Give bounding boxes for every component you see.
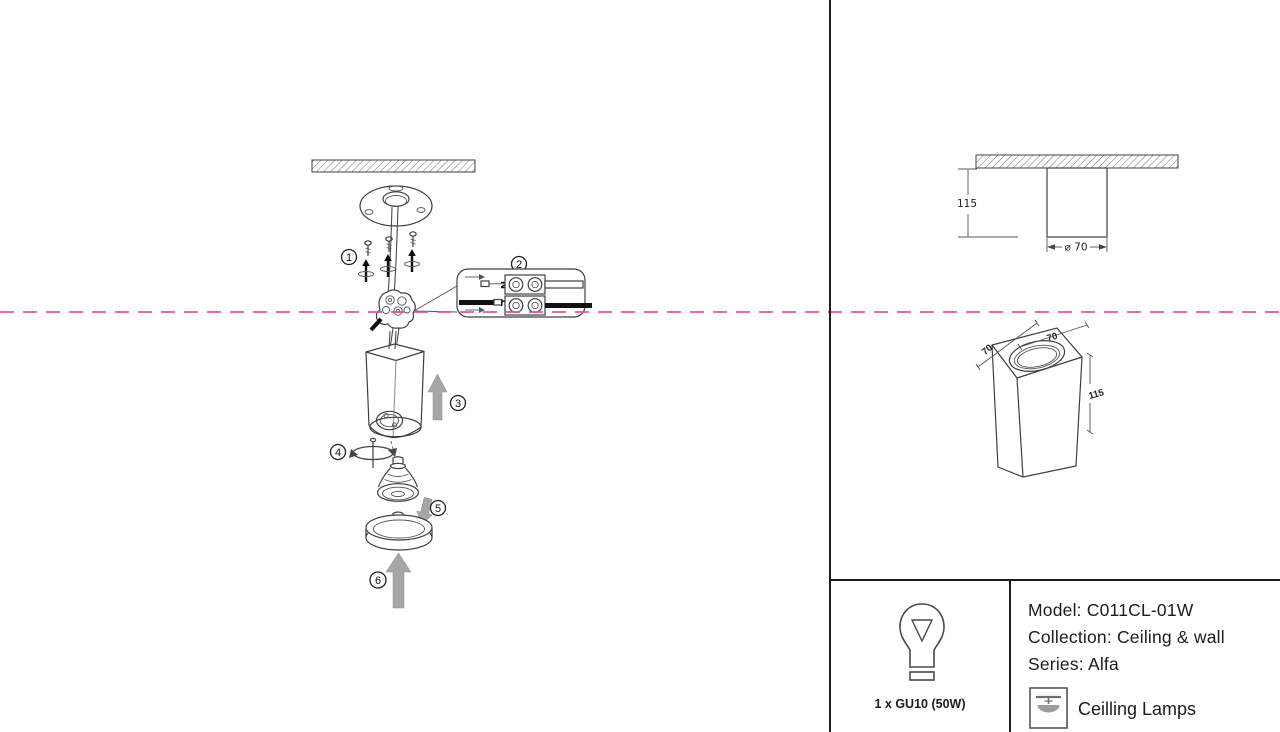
lamp-side-view [1047, 168, 1107, 237]
step-6-attach: 6 [370, 553, 411, 608]
step-5-badge: 5 [431, 501, 446, 516]
step-6-badge: 6 [370, 572, 386, 588]
up-arrow-icon [428, 374, 447, 420]
collection-text: Collection: Ceiling & wall [1028, 627, 1225, 648]
up-arrow-icon [386, 553, 411, 608]
ceiling-lamp-icon [1030, 688, 1067, 728]
assembly-diagram: 1 [312, 160, 592, 608]
category-text: Ceilling Lamps [1078, 699, 1196, 720]
wire-joint [371, 290, 415, 349]
step-4-number: 4 [335, 447, 341, 459]
step-1-badge: 1 [342, 250, 357, 265]
lamp-body [366, 331, 424, 438]
screw-1 [359, 241, 374, 282]
mounting-plate [360, 186, 432, 226]
step-6-number: 6 [375, 575, 381, 587]
screw-3 [405, 232, 420, 272]
step-5-number: 5 [435, 503, 441, 515]
terminal-block-detail: 2 N L [414, 257, 592, 318]
iso-height-label: 115 [1088, 387, 1106, 402]
series-text: Series: Alfa [1028, 654, 1119, 675]
step-3-mount: 3 [428, 374, 466, 420]
side-diameter-label: ⌀ 70 [1064, 242, 1087, 254]
bulb-spec: 1 x GU10 (50W) [830, 697, 1010, 711]
ceiling-hatch-left [312, 160, 475, 172]
instruction-sheet-canvas: 1 [0, 0, 1280, 732]
ceiling-hatch-right [976, 155, 1178, 168]
model-text: Model: C011CL-01W [1028, 600, 1194, 621]
lamp-iso-view [992, 328, 1082, 477]
gu10-bulb [378, 457, 419, 502]
step-1-number: 1 [346, 252, 352, 264]
step-1-screws: 1 [342, 232, 420, 282]
step-4-rotate: 4 [331, 438, 398, 468]
step-4-badge: 4 [331, 445, 346, 460]
side-view-diagram: 115 ⌀ 70 [957, 155, 1178, 254]
step-3-badge: 3 [451, 396, 466, 411]
side-height-label: 115 [957, 198, 977, 210]
step-3-number: 3 [455, 398, 461, 410]
iso-view-diagram: 70 70 115 [976, 320, 1106, 477]
screw-2 [381, 237, 396, 277]
bulb-icon [900, 604, 944, 680]
